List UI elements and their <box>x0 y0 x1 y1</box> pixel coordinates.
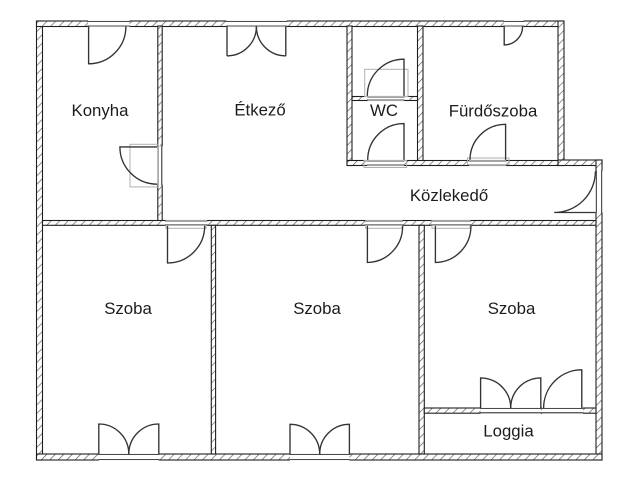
svg-text:Szoba: Szoba <box>293 299 341 318</box>
svg-text:Szoba: Szoba <box>104 299 152 318</box>
svg-text:WC: WC <box>370 101 398 120</box>
svg-text:Közlekedő: Közlekedő <box>410 186 488 205</box>
svg-text:Konyha: Konyha <box>72 101 130 120</box>
svg-text:Fürdőszoba: Fürdőszoba <box>449 102 538 121</box>
svg-text:Étkező: Étkező <box>234 101 285 120</box>
svg-text:Loggia: Loggia <box>483 422 534 441</box>
svg-text:Szoba: Szoba <box>488 299 536 318</box>
